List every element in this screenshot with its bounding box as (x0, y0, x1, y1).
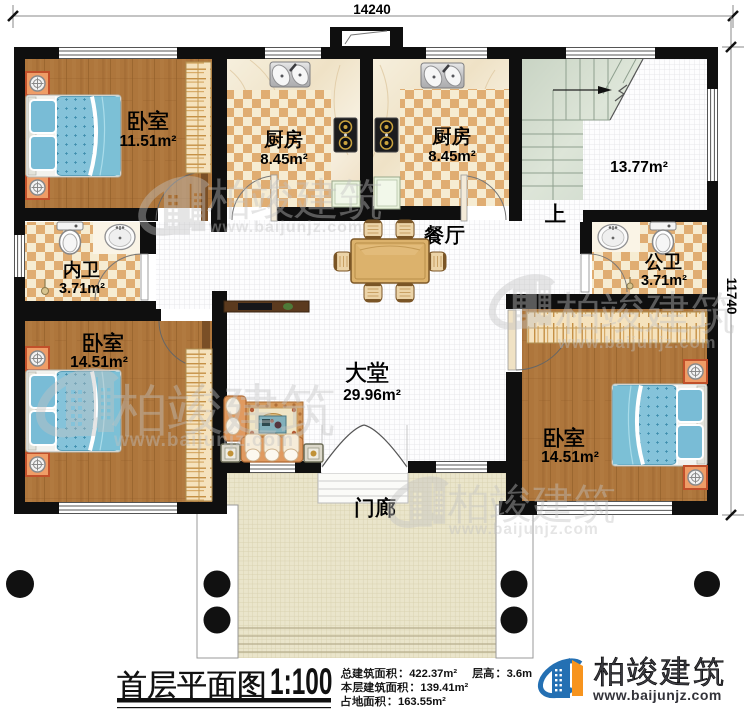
svg-text:13.77m²: 13.77m² (610, 159, 668, 176)
svg-text:1:100: 1:100 (270, 661, 332, 702)
svg-text:8.45m²: 8.45m² (260, 151, 308, 168)
svg-text:www.baijunjz.com: www.baijunjz.com (113, 430, 294, 451)
svg-text:：163.55m²: ：163.55m² (387, 696, 446, 708)
svg-text:www.baijunjz.com: www.baijunjz.com (448, 521, 599, 538)
svg-text:14.51m²: 14.51m² (541, 449, 599, 466)
svg-text:www.baijunjz.com: www.baijunjz.com (557, 334, 716, 352)
svg-text:www.baijunjz.com: www.baijunjz.com (592, 687, 722, 703)
svg-text:3.71m²: 3.71m² (641, 273, 687, 289)
svg-text:11.51m²: 11.51m² (120, 133, 177, 150)
svg-text:8.45m²: 8.45m² (428, 148, 476, 165)
svg-text:：3.6m: ：3.6m (495, 668, 532, 680)
svg-text:29.96m²: 29.96m² (343, 387, 401, 404)
svg-text:：422.37m²: ：422.37m² (398, 668, 457, 680)
svg-text:：139.41m²: ：139.41m² (409, 682, 468, 694)
svg-text:www.baijunjz.com: www.baijunjz.com (208, 219, 363, 236)
svg-text:14240: 14240 (353, 2, 391, 17)
svg-text:3.71m²: 3.71m² (59, 281, 105, 297)
